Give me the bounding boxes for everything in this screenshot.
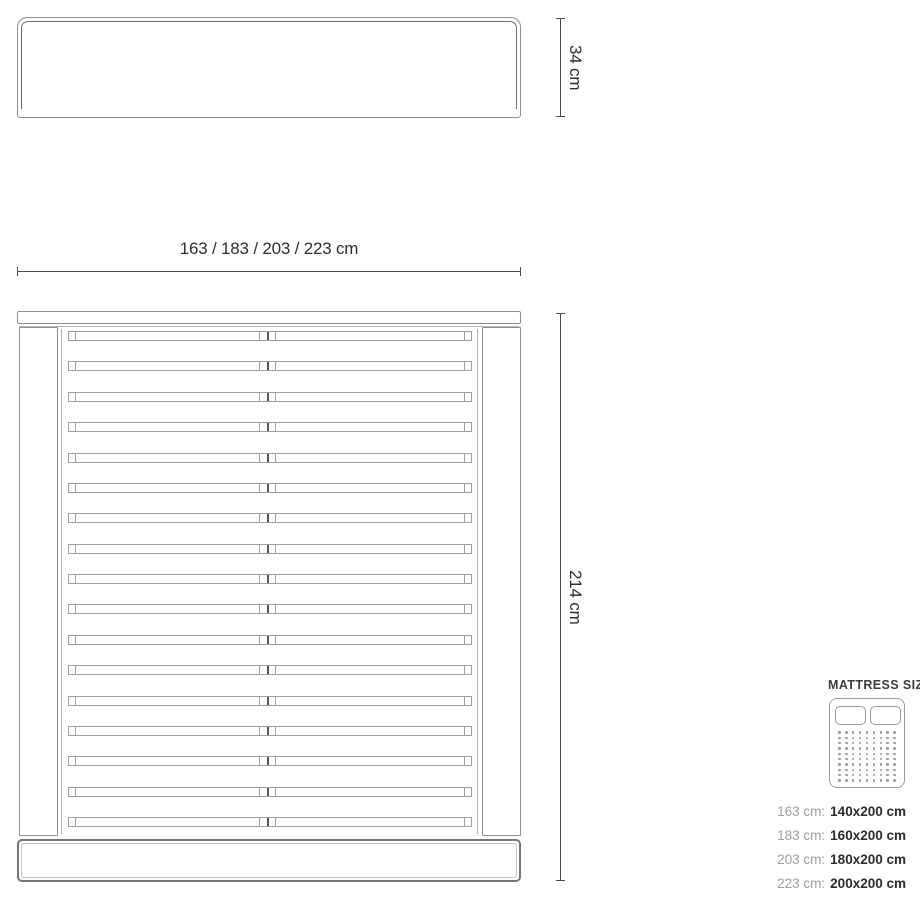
mattress-size-table: 163 cm:140x200 cm183 cm:160x200 cm203 cm…: [760, 799, 906, 896]
slat-joint-mark: [464, 393, 465, 401]
headboard-front-view: [17, 17, 521, 118]
mattress-dot: [880, 769, 882, 771]
mattress-dot: [893, 779, 895, 781]
headboard-bevel-line: [21, 21, 517, 109]
slat-joint-mark: [275, 454, 276, 462]
mattress-dot: [859, 774, 861, 776]
slat: [68, 574, 472, 584]
slat-joint-mark: [275, 605, 276, 613]
slat-joint-mark: [75, 605, 76, 613]
mattress-dot: [880, 731, 882, 733]
slat-joint-mark: [259, 636, 260, 644]
mattress-dot: [852, 779, 854, 781]
mattress-dot: [886, 769, 888, 771]
left-side-rail: [19, 327, 58, 836]
slat-joint-mark: [267, 484, 269, 492]
mattress-dot: [845, 769, 847, 771]
slat-joint-mark: [464, 605, 465, 613]
slat-joint-mark: [275, 514, 276, 522]
slat-joint-mark: [75, 697, 76, 705]
slat-joint-mark: [275, 757, 276, 765]
mattress-dot: [873, 747, 875, 749]
mattress-dot: [845, 747, 847, 749]
mattress-dot: [866, 731, 868, 733]
mattress-dot: [859, 742, 861, 744]
slat-joint-mark: [464, 514, 465, 522]
mattress-dot: [838, 747, 840, 749]
slat-joint-mark: [267, 332, 269, 340]
slat-joint-mark: [267, 697, 269, 705]
mattress-dot: [873, 774, 875, 776]
slat-joint-mark: [259, 818, 260, 826]
mattress-dot: [893, 731, 895, 733]
bed-width-dimension-label: 163 / 183 / 203 / 223 cm: [17, 239, 521, 259]
slat-joint-mark: [275, 484, 276, 492]
mattress-dot: [859, 731, 861, 733]
slat-joint-mark: [267, 605, 269, 613]
mattress-dot: [893, 763, 895, 765]
mattress-dot: [859, 769, 861, 771]
slat-joint-mark: [259, 332, 260, 340]
mattress-dot: [852, 769, 854, 771]
mattress-dot: [845, 742, 847, 744]
slat-joint-mark: [259, 362, 260, 370]
slat: [68, 544, 472, 554]
slat-joint-mark: [75, 514, 76, 522]
mattress-dot: [873, 769, 875, 771]
slat-joint-mark: [75, 454, 76, 462]
slat-joint-mark: [75, 788, 76, 796]
right-rail-ledge-line: [477, 329, 478, 834]
mattress-dot: [852, 763, 854, 765]
mattress-dot: [893, 747, 895, 749]
mattress-dot: [886, 758, 888, 760]
frame-width-label: 203 cm:: [777, 852, 825, 867]
slat-joint-mark: [464, 788, 465, 796]
slat: [68, 696, 472, 706]
pillow-icon: [870, 706, 901, 725]
mattress-dot: [838, 753, 840, 755]
slat: [68, 331, 472, 341]
slat-joint-mark: [75, 393, 76, 401]
mattress-dot: [866, 758, 868, 760]
mattress-dot: [852, 758, 854, 760]
mattress-dot: [852, 737, 854, 739]
slat-joint-mark: [75, 757, 76, 765]
mattress-dot: [859, 753, 861, 755]
slat-joint-mark: [464, 332, 465, 340]
slat-joint-mark: [464, 575, 465, 583]
slat-joint-mark: [464, 818, 465, 826]
mattress-dot: [866, 769, 868, 771]
mattress-dot: [886, 779, 888, 781]
slat-joint-mark: [75, 636, 76, 644]
footboard-top-view: [17, 839, 521, 882]
slat-joint-mark: [259, 788, 260, 796]
slat-joint-mark: [464, 697, 465, 705]
slat: [68, 726, 472, 736]
slat-area: [68, 331, 472, 828]
dimension-end-tick: [17, 267, 18, 276]
mattress-dot: [873, 753, 875, 755]
mattress-dot: [880, 774, 882, 776]
mattress-size-value: 140x200 cm: [830, 804, 906, 819]
bed-length-dimension-line: [560, 313, 561, 881]
mattress-dot: [852, 753, 854, 755]
right-side-rail: [482, 327, 521, 836]
slat-joint-mark: [267, 575, 269, 583]
slat-joint-mark: [75, 423, 76, 431]
mattress-size-value: 180x200 cm: [830, 852, 906, 867]
mattress-dot: [838, 758, 840, 760]
slat-joint-mark: [275, 332, 276, 340]
slat-joint-mark: [259, 757, 260, 765]
slat-joint-mark: [259, 423, 260, 431]
mattress-dot: [873, 742, 875, 744]
slat-joint-mark: [275, 666, 276, 674]
mattress-dot: [873, 758, 875, 760]
mattress-dot: [886, 753, 888, 755]
mattress-dot: [893, 742, 895, 744]
mattress-dot: [873, 779, 875, 781]
mattress-dot: [880, 737, 882, 739]
slat-joint-mark: [267, 818, 269, 826]
slat-joint-mark: [275, 423, 276, 431]
mattress-dot: [866, 747, 868, 749]
slat-joint-mark: [267, 727, 269, 735]
mattress-dot: [852, 774, 854, 776]
slat: [68, 665, 472, 675]
mattress-dot: [845, 774, 847, 776]
mattress-dot: [866, 779, 868, 781]
slat-joint-mark: [267, 757, 269, 765]
slat-joint-mark: [275, 575, 276, 583]
mattress-size-row: 163 cm:140x200 cm: [760, 799, 906, 823]
slat-joint-mark: [464, 727, 465, 735]
slat-joint-mark: [75, 484, 76, 492]
slat-joint-mark: [275, 818, 276, 826]
slat: [68, 756, 472, 766]
slat-joint-mark: [275, 727, 276, 735]
slat-joint-mark: [259, 454, 260, 462]
mattress-size-row: 183 cm:160x200 cm: [760, 823, 906, 847]
slat: [68, 787, 472, 797]
slat-joint-mark: [75, 727, 76, 735]
slat-joint-mark: [464, 545, 465, 553]
mattress-dot: [873, 763, 875, 765]
slat-joint-mark: [267, 423, 269, 431]
frame-width-label: 163 cm:: [777, 804, 825, 819]
mattress-dot: [852, 742, 854, 744]
slat-joint-mark: [464, 362, 465, 370]
slat: [68, 483, 472, 493]
mattress-dot: [859, 758, 861, 760]
mattress-size-row: 203 cm:180x200 cm: [760, 847, 906, 871]
slat: [68, 422, 472, 432]
pillow-icon: [835, 706, 866, 725]
mattress-size-title: MATTRESS SIZE: [828, 678, 920, 692]
technical-drawing-page: 34 cm 163 / 183 / 203 / 223 cm 214 cm MA…: [0, 0, 920, 900]
mattress-dot: [893, 769, 895, 771]
left-rail-ledge-line: [61, 329, 62, 834]
slat-joint-mark: [275, 362, 276, 370]
mattress-dot: [866, 737, 868, 739]
slat: [68, 361, 472, 371]
mattress-dot: [866, 774, 868, 776]
mattress-dot: [886, 737, 888, 739]
mattress-dot: [838, 774, 840, 776]
slat-joint-mark: [75, 818, 76, 826]
mattress-dot: [886, 774, 888, 776]
slat-joint-mark: [267, 362, 269, 370]
double-mattress-icon: [829, 698, 905, 788]
mattress-dot: [880, 753, 882, 755]
mattress-dot: [838, 742, 840, 744]
mattress-dot: [880, 779, 882, 781]
slat-joint-mark: [275, 636, 276, 644]
slat: [68, 392, 472, 402]
bed-width-dimension-line: [17, 271, 521, 272]
slat-joint-mark: [275, 545, 276, 553]
mattress-dot: [852, 747, 854, 749]
frame-width-label: 183 cm:: [777, 828, 825, 843]
slat-joint-mark: [275, 697, 276, 705]
mattress-dot: [845, 763, 847, 765]
mattress-dot: [859, 779, 861, 781]
mattress-size-value: 200x200 cm: [830, 876, 906, 891]
mattress-size-value: 160x200 cm: [830, 828, 906, 843]
mattress-dot: [866, 742, 868, 744]
slat-joint-mark: [259, 605, 260, 613]
mattress-dot: [880, 758, 882, 760]
slat-joint-mark: [464, 423, 465, 431]
footboard-inner-line: [21, 843, 517, 878]
slat-joint-mark: [259, 545, 260, 553]
slat-joint-mark: [464, 484, 465, 492]
mattress-dot: [852, 731, 854, 733]
slat-joint-mark: [259, 697, 260, 705]
mattress-dot: [893, 758, 895, 760]
headboard-height-dimension-line: [560, 18, 561, 117]
slat: [68, 604, 472, 614]
mattress-dot: [838, 769, 840, 771]
bed-headboard-top-view: [17, 311, 521, 324]
slat-joint-mark: [267, 454, 269, 462]
dimension-end-tick: [520, 267, 521, 276]
mattress-dot: [838, 731, 840, 733]
slat-joint-mark: [267, 514, 269, 522]
slat-joint-mark: [464, 454, 465, 462]
mattress-dot: [886, 747, 888, 749]
mattress-dot: [838, 779, 840, 781]
slat: [68, 453, 472, 463]
mattress-dot: [873, 737, 875, 739]
slat-joint-mark: [267, 545, 269, 553]
mattress-dot: [845, 779, 847, 781]
slat-joint-mark: [75, 545, 76, 553]
slat-joint-mark: [267, 393, 269, 401]
mattress-dot: [873, 731, 875, 733]
slat-joint-mark: [259, 727, 260, 735]
frame-width-label: 223 cm:: [777, 876, 825, 891]
mattress-dot: [880, 747, 882, 749]
mattress-dot: [886, 731, 888, 733]
slat-joint-mark: [464, 666, 465, 674]
mattress-dot: [866, 763, 868, 765]
slat-joint-mark: [275, 788, 276, 796]
mattress-dot: [838, 737, 840, 739]
slat-joint-mark: [259, 393, 260, 401]
slat-joint-mark: [75, 575, 76, 583]
mattress-dot: [845, 758, 847, 760]
slat: [68, 513, 472, 523]
mattress-dot: [880, 763, 882, 765]
slat-joint-mark: [259, 514, 260, 522]
slat-joint-mark: [75, 666, 76, 674]
mattress-dot: [880, 742, 882, 744]
slat-joint-mark: [259, 484, 260, 492]
slat-joint-mark: [259, 575, 260, 583]
mattress-dot: [893, 774, 895, 776]
mattress-dot: [866, 753, 868, 755]
mattress-size-row: 223 cm:200x200 cm: [760, 872, 906, 896]
slat-joint-mark: [275, 393, 276, 401]
slat-joint-mark: [267, 636, 269, 644]
slat-joint-mark: [464, 757, 465, 765]
slat-joint-mark: [267, 788, 269, 796]
mattress-dot: [838, 763, 840, 765]
slat-joint-mark: [267, 666, 269, 674]
mattress-dot: [886, 742, 888, 744]
slat-joint-mark: [259, 666, 260, 674]
mattress-dot: [893, 753, 895, 755]
mattress-dot: [859, 747, 861, 749]
mattress-dot: [845, 753, 847, 755]
mattress-dot: [859, 737, 861, 739]
mattress-dot: [859, 763, 861, 765]
slat-joint-mark: [464, 636, 465, 644]
mattress-dot: [886, 763, 888, 765]
mattress-dot: [893, 737, 895, 739]
mattress-dot: [845, 731, 847, 733]
mattress-dot: [845, 737, 847, 739]
slat: [68, 635, 472, 645]
mattress-dots: [836, 730, 898, 783]
slat-joint-mark: [75, 362, 76, 370]
headboard-edge-line: [19, 326, 519, 327]
slat-joint-mark: [75, 332, 76, 340]
slat: [68, 817, 472, 827]
bed-length-dimension-label: 214 cm: [564, 313, 586, 881]
headboard-height-dimension-label: 34 cm: [564, 18, 586, 117]
